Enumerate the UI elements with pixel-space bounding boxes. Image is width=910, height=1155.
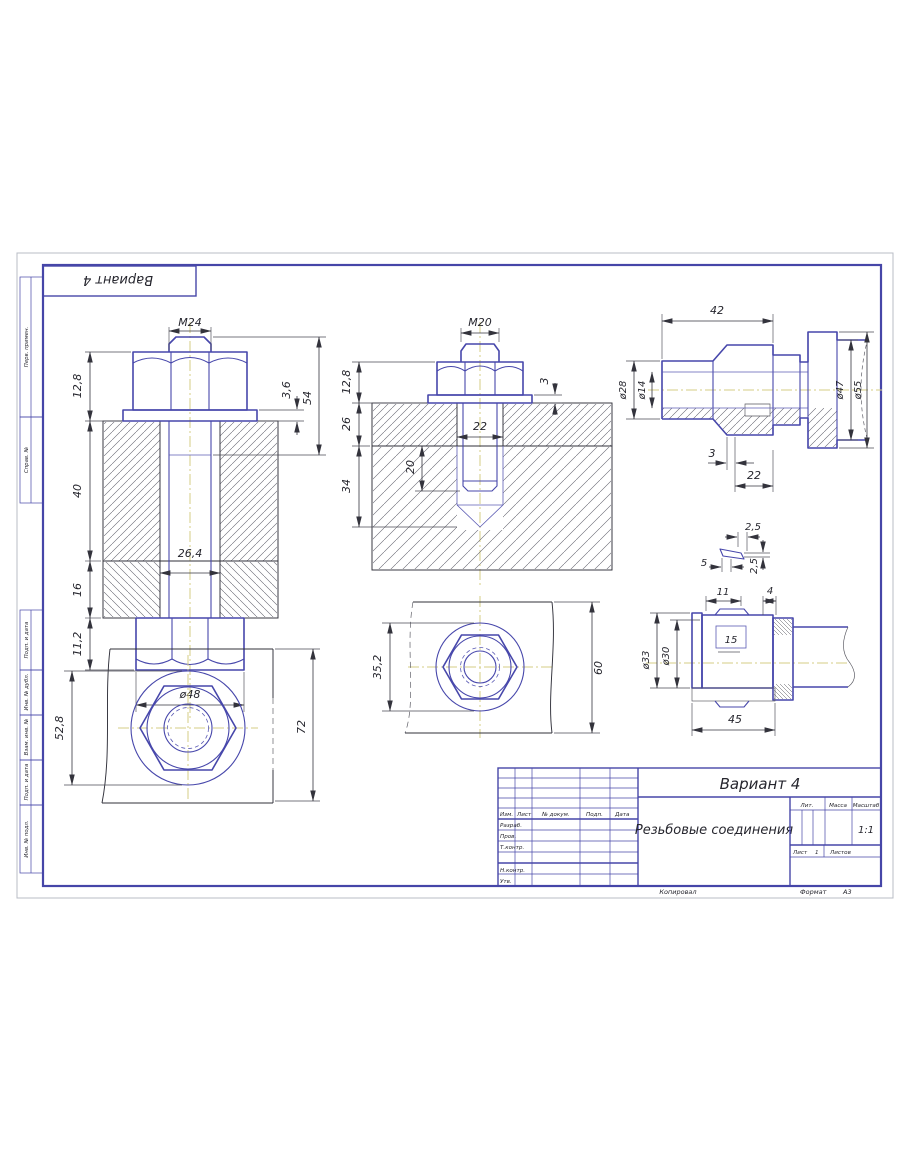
dim-nut-height: 12,8 bbox=[71, 374, 84, 399]
dim-352: 35,2 bbox=[371, 655, 384, 680]
dim-d33: ø33 bbox=[641, 651, 652, 671]
masshtab-label: Масштаб bbox=[853, 803, 880, 809]
lit-label: Лит. bbox=[800, 803, 814, 809]
dim-washer-36: 3,6 bbox=[280, 381, 293, 399]
dim-thread-m20: M20 bbox=[468, 316, 492, 329]
dim-seal-25a: 2,5 bbox=[745, 522, 761, 533]
massa-label: Масса bbox=[829, 803, 847, 809]
margin-label: Взам. инв. № bbox=[24, 718, 30, 755]
dim-across-flats: ø48 bbox=[179, 688, 201, 701]
dim-22: 22 bbox=[747, 469, 761, 482]
engineering-drawing: Перв. примен. Справ. № Подп. и дата Инв.… bbox=[0, 0, 910, 1155]
drawing-sheet-page: Перв. примен. Справ. № Подп. и дата Инв.… bbox=[0, 0, 910, 1155]
dim-window-15: 15 bbox=[725, 635, 738, 646]
variant-title: Вариант 4 bbox=[720, 775, 801, 793]
dim-head-height: 11,2 bbox=[71, 632, 84, 657]
dim-seal-5: 5 bbox=[701, 558, 707, 569]
row-utv: Утв. bbox=[500, 879, 512, 885]
row-prov: Пров. bbox=[500, 834, 516, 840]
document-title: Резьбовые соединения bbox=[635, 823, 793, 838]
margin-label: Подп. и дата bbox=[24, 622, 30, 659]
margin-label: Инв. № подл. bbox=[24, 820, 30, 857]
dim-washer-3: 3 bbox=[538, 378, 551, 385]
dim-nut-height: 12,8 bbox=[340, 370, 353, 395]
dim-4: 4 bbox=[767, 586, 773, 597]
dim-60: 60 bbox=[592, 661, 605, 675]
col-data: Дата bbox=[614, 812, 630, 818]
dim-d47: ø47 bbox=[835, 380, 846, 400]
dim-54: 54 bbox=[301, 391, 314, 405]
dim-thread-m24: M24 bbox=[178, 316, 202, 329]
col-podp: Подп. bbox=[586, 812, 603, 818]
dim-d28: ø28 bbox=[618, 381, 629, 401]
margin-label: Справ. № bbox=[24, 446, 30, 473]
dim-gap-3: 3 bbox=[709, 447, 716, 460]
dim-plate-26: 26 bbox=[340, 417, 353, 431]
margin-label: Подп. и дата bbox=[24, 764, 30, 801]
dim-d14: ø14 bbox=[637, 381, 648, 401]
dim-528: 52,8 bbox=[53, 716, 66, 741]
dim-seal-25b: 2,5 bbox=[749, 558, 760, 574]
format-value: А3 bbox=[842, 888, 852, 896]
row-tkontr: Т.контр. bbox=[500, 845, 524, 851]
dim-d55: ø55 bbox=[853, 381, 864, 401]
row-nkontr: Н.контр. bbox=[500, 868, 525, 874]
dim-depth-34: 34 bbox=[340, 479, 353, 493]
scale-value: 1:1 bbox=[858, 825, 874, 836]
list-label: Лист bbox=[792, 850, 808, 856]
col-izm: Изм. bbox=[500, 812, 513, 818]
dim-plate1: 40 bbox=[71, 484, 84, 498]
corner-stamp-text: Вариант 4 bbox=[83, 272, 153, 287]
margin-label: Перв. примен. bbox=[24, 327, 30, 367]
dim-20: 20 bbox=[404, 460, 417, 474]
dim-42: 42 bbox=[710, 304, 724, 317]
dim-hole: 26,4 bbox=[178, 547, 203, 560]
col-list: Лист bbox=[516, 812, 532, 818]
dim-d30: ø30 bbox=[661, 647, 672, 667]
listov-label: Листов bbox=[829, 850, 851, 856]
kopiroval-label: Копировал bbox=[659, 888, 696, 896]
dim-45: 45 bbox=[728, 713, 742, 726]
margin-label: Инв. № дубл. bbox=[24, 674, 30, 711]
dim-plate2: 16 bbox=[71, 583, 84, 597]
col-doc: № докум. bbox=[541, 812, 570, 818]
row-razrab: Разраб. bbox=[500, 823, 522, 829]
dim-11: 11 bbox=[717, 587, 730, 598]
list-value: 1 bbox=[815, 850, 819, 856]
dim-hole-22: 22 bbox=[473, 420, 487, 433]
format-label: Формат bbox=[800, 888, 827, 896]
dim-72: 72 bbox=[295, 720, 308, 734]
